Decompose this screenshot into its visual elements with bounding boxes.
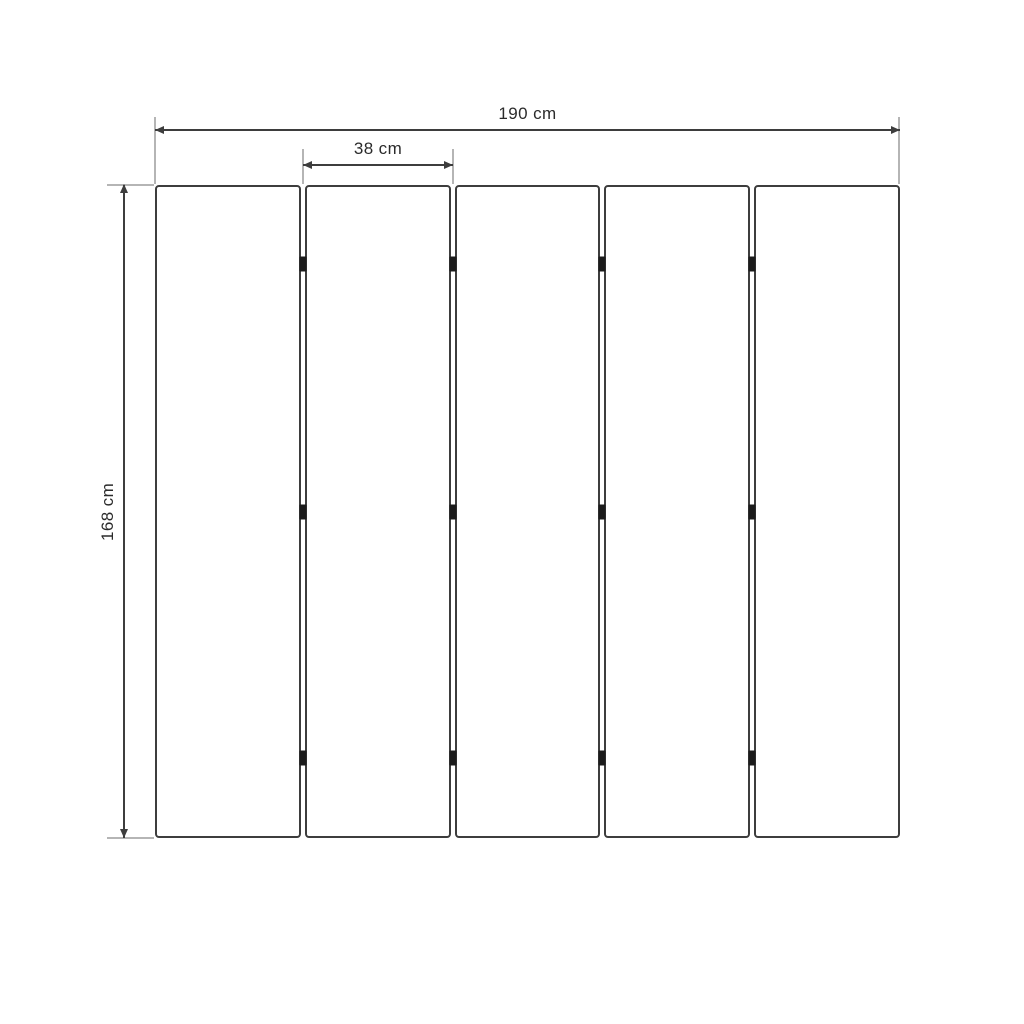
panel-width-arrow-right-icon [444,161,453,169]
total-width-arrow-right-icon [891,126,900,134]
height-arrow-up-icon [120,184,128,193]
hinge-joint1-2 [299,504,306,519]
hinge-joint3-3 [599,750,606,765]
hinge-joint3-2 [599,504,606,519]
height-label: 168 cm [98,185,118,838]
panel-row [155,185,900,838]
dimension-diagram: 190 cm 38 cm 168 cm [0,0,1024,1024]
hinge-joint4-1 [749,257,756,272]
panel-4 [604,185,750,838]
hinge-joint3-1 [599,257,606,272]
panel-width-dimension-line [303,164,453,166]
panel-3 [455,185,601,838]
panel-width-arrow-left-icon [303,161,312,169]
hinge-joint4-2 [749,504,756,519]
panel-2 [305,185,451,838]
hinge-joint1-3 [299,750,306,765]
hinge-joint2-1 [449,257,456,272]
panel-width-label: 38 cm [303,139,453,159]
hinge-joint2-3 [449,750,456,765]
total-width-dimension-line [155,129,900,131]
panel-5 [754,185,900,838]
hinge-joint4-3 [749,750,756,765]
hinge-joint1-1 [299,257,306,272]
panel-1 [155,185,301,838]
hinge-joint2-2 [449,504,456,519]
total-width-arrow-left-icon [155,126,164,134]
height-arrow-down-icon [120,829,128,838]
total-width-label: 190 cm [155,104,900,124]
height-dimension-line [123,185,125,838]
